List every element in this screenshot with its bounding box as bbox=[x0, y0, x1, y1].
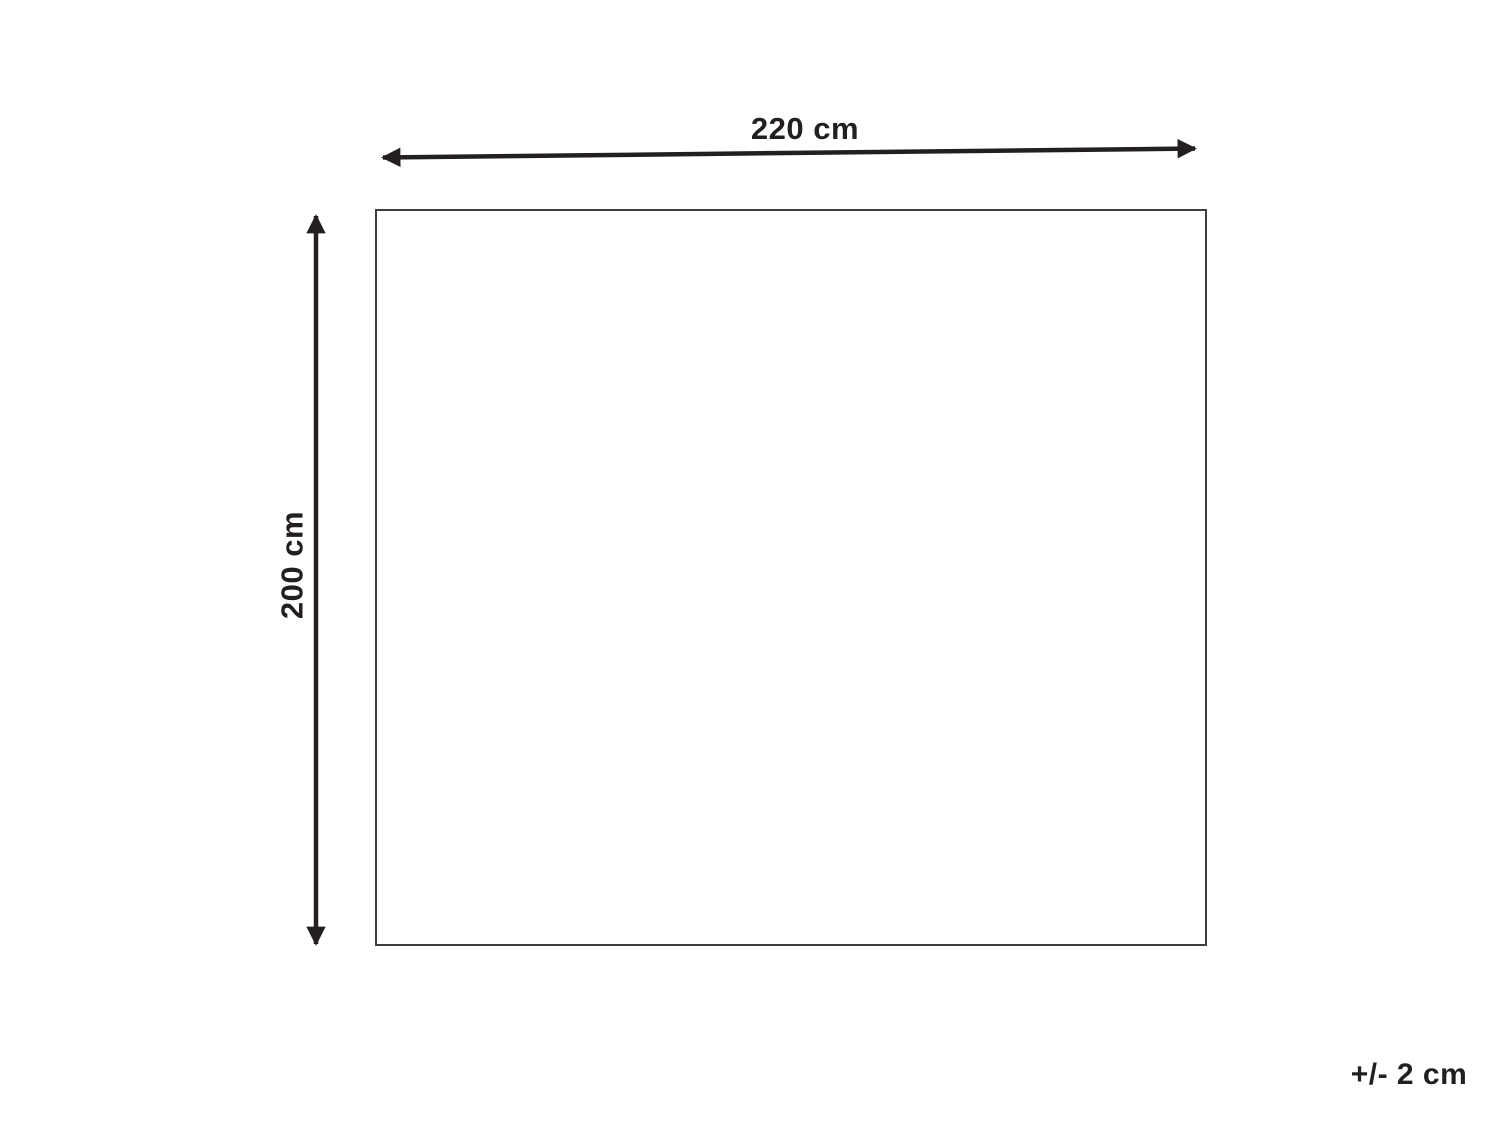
height-dimension-label: 200 cm bbox=[277, 511, 308, 619]
width-dimension-arrow bbox=[383, 149, 1195, 158]
dimension-diagram: 220 cm 200 cm +/- 2 cm bbox=[0, 0, 1500, 1125]
product-outline-rect bbox=[376, 210, 1206, 945]
tolerance-label: +/- 2 cm bbox=[1351, 1060, 1468, 1090]
width-dimension-label: 220 cm bbox=[751, 113, 859, 144]
diagram-graphics bbox=[0, 0, 1500, 1125]
